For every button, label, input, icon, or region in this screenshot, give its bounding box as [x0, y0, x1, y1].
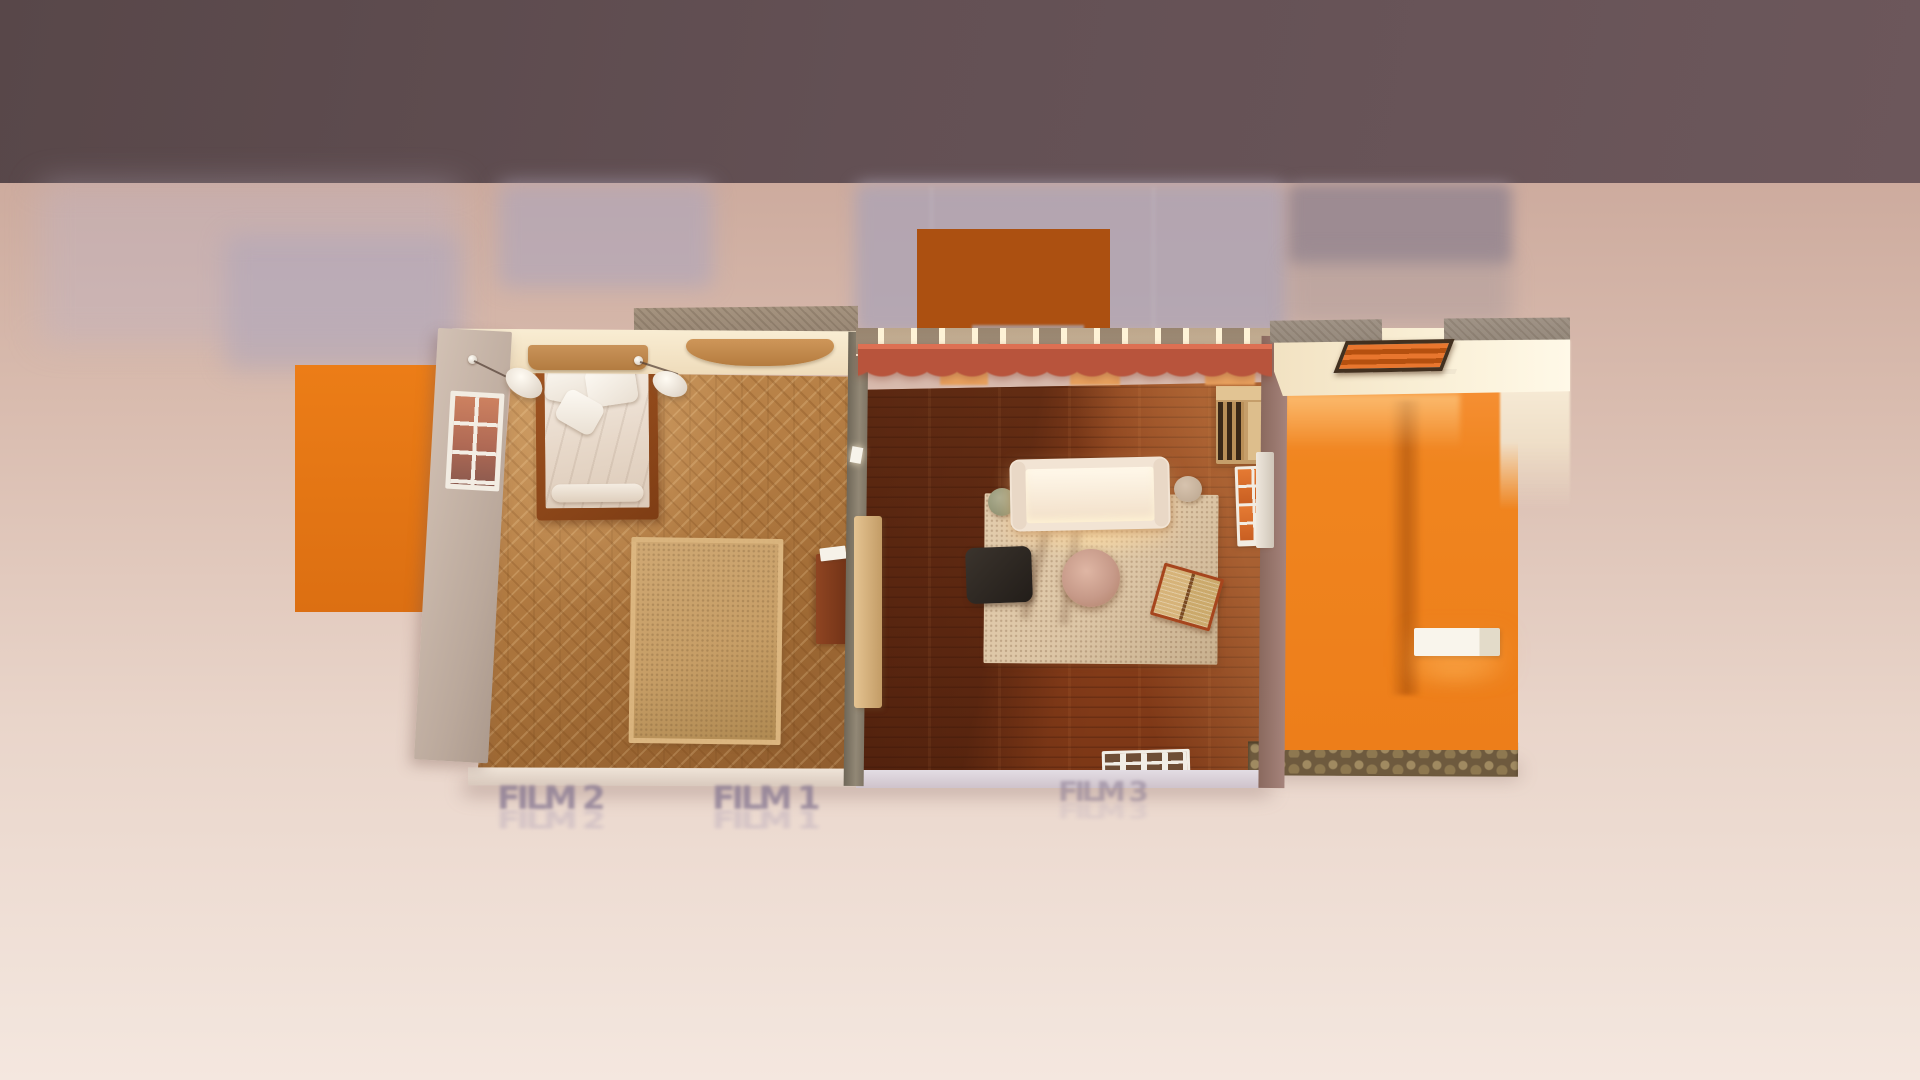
book-spines [1218, 402, 1244, 460]
coffee-table[interactable] [1062, 549, 1120, 607]
render-viewport: FILM 2 FILM 2 FILM 1 FILM 1 FILM 3 FILM … [0, 0, 1920, 1080]
soft-shadow-patch [498, 183, 713, 288]
soft-shadow-patch [1288, 255, 1512, 325]
sofa-arm [1153, 458, 1168, 526]
hallway-ceiling-glow [1284, 394, 1460, 449]
sofa-arm [1011, 461, 1026, 529]
front-door[interactable] [1333, 339, 1454, 373]
bedroom-rug[interactable] [629, 537, 784, 745]
roof-slab [1270, 319, 1382, 343]
orange-panel-top [917, 229, 1110, 333]
living-room-right-wall [1258, 336, 1287, 788]
backdrop-top-band [0, 0, 1920, 183]
sofa[interactable] [1009, 456, 1170, 531]
roof-slab [1444, 317, 1570, 340]
duvet-roll [551, 484, 643, 503]
set-label-film-3-extrusion: FILM 3 [1058, 799, 1145, 824]
red-curtains[interactable] [858, 344, 1272, 392]
frame-back-panel [1256, 452, 1274, 548]
mattress [544, 361, 649, 509]
bedroom-window[interactable] [445, 391, 504, 492]
sofa-seat [1025, 467, 1154, 524]
bed[interactable] [535, 353, 658, 520]
dark-ottoman[interactable] [965, 546, 1033, 604]
soft-shadow-patch [1288, 183, 1512, 265]
backdrop-seam [1152, 186, 1155, 334]
set-label-film-1-extrusion: FILM 1 [712, 806, 817, 835]
round-stool[interactable] [1174, 476, 1202, 502]
set-label-film-2-extrusion: FILM 2 [497, 806, 602, 835]
wardrobe-panel[interactable] [854, 516, 882, 708]
soft-shadow-patch [225, 235, 460, 370]
bench-light-glow [1400, 650, 1510, 690]
headboard-shelf[interactable] [528, 345, 648, 370]
wall-bench[interactable] [1414, 628, 1500, 656]
